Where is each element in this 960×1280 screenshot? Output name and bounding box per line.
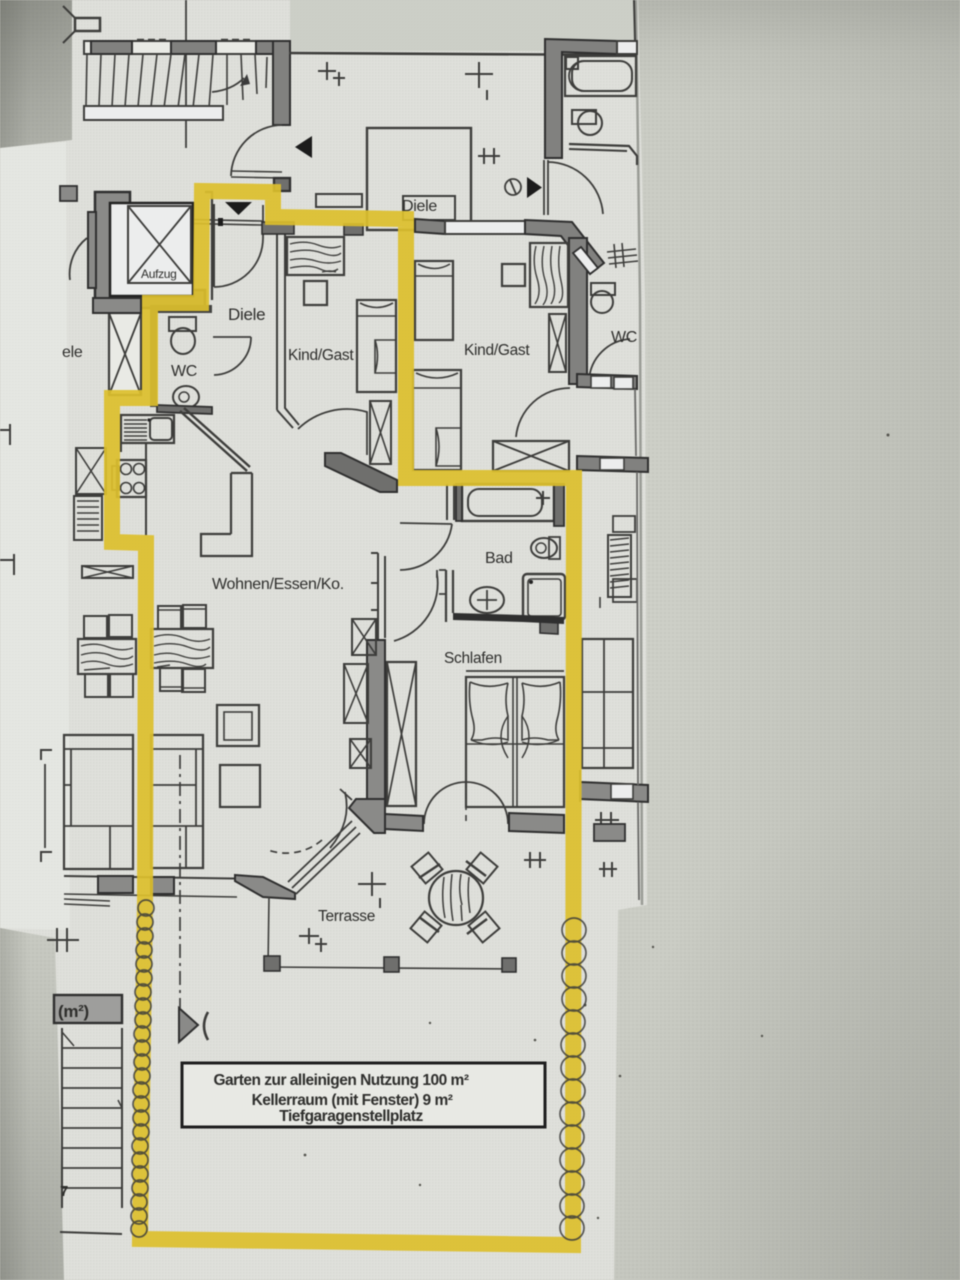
svg-text:Tiefgaragenstellplatz: Tiefgaragenstellplatz (279, 1108, 423, 1125)
svg-text:Diele: Diele (228, 305, 265, 324)
svg-text:Aufzug: Aufzug (141, 267, 177, 281)
svg-text:Garten zur alleinigen Nutzung: Garten zur alleinigen Nutzung 100 m² (213, 1072, 468, 1089)
svg-text:7: 7 (60, 1183, 68, 1200)
svg-text:Kind/Gast: Kind/Gast (464, 342, 530, 359)
svg-text:Kind/Gast: Kind/Gast (288, 347, 354, 364)
svg-text:Diele: Diele (402, 198, 437, 215)
svg-text:Bad: Bad (485, 550, 513, 567)
svg-text:WC: WC (611, 329, 637, 346)
svg-text:Wohnen/Essen/Ko.: Wohnen/Essen/Ko. (212, 576, 344, 593)
svg-text:(m²): (m²) (58, 1002, 89, 1021)
svg-text:WC: WC (171, 363, 197, 380)
svg-text:Kellerraum (mit Fenster) 9 m²: Kellerraum (mit Fenster) 9 m² (252, 1092, 453, 1109)
svg-text:ele: ele (62, 344, 83, 361)
svg-text:Terrasse: Terrasse (318, 908, 375, 925)
svg-text:Schlafen: Schlafen (444, 650, 502, 667)
